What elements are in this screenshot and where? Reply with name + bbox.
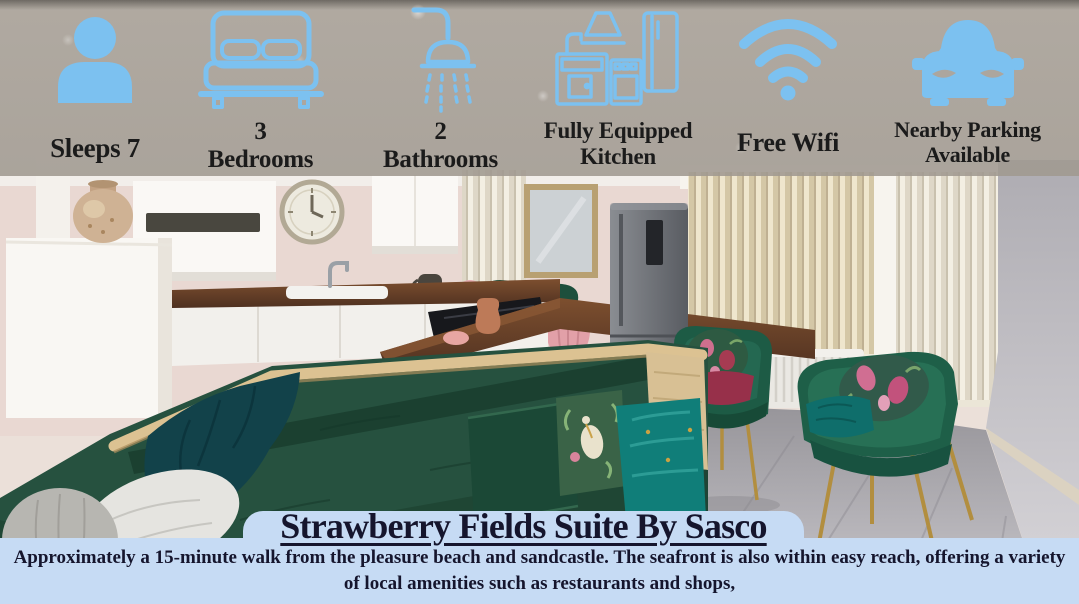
kitchen-icon: [523, 0, 713, 118]
feature-parking: Nearby Parking Available: [870, 0, 1065, 167]
feature-count: 3: [183, 118, 338, 146]
feature-label: Nearby Parking: [870, 118, 1065, 143]
feature-sleeps: Sleeps 7: [15, 0, 175, 163]
feature-bathrooms: 2 Bathrooms: [363, 0, 518, 174]
property-description: Approximately a 15-minute walk from the …: [11, 545, 1068, 597]
amenities-banner: Sleeps 7 3 Bedrooms: [0, 0, 1079, 176]
wall-mirror: [527, 187, 595, 275]
cushion-teal: [616, 398, 706, 520]
feature-count: 2: [363, 118, 518, 146]
wifi-icon: [713, 0, 863, 118]
feature-label-2: Available: [870, 143, 1065, 168]
feature-label: Bedrooms: [183, 146, 338, 174]
person-icon: [15, 0, 175, 118]
feature-label: Sleeps 7: [15, 133, 175, 163]
tall-cabinet: [6, 238, 172, 418]
feature-label: Bathrooms: [363, 146, 518, 174]
feature-label: Free Wifi: [713, 128, 863, 157]
wall-clock: [282, 182, 342, 242]
car-icon: [870, 0, 1065, 118]
feature-wifi: Free Wifi: [713, 0, 863, 157]
shower-icon: [363, 0, 518, 118]
bed-icon: [183, 0, 338, 118]
property-title: Strawberry Fields Suite By Sasco: [193, 505, 854, 547]
listing-poster: Sleeps 7 3 Bedrooms: [0, 0, 1079, 604]
feature-bedrooms: 3 Bedrooms: [183, 0, 338, 174]
feature-kitchen: Fully Equipped Kitchen: [523, 0, 713, 170]
feature-label: Fully Equipped: [523, 118, 713, 144]
feature-label-2: Kitchen: [523, 144, 713, 170]
